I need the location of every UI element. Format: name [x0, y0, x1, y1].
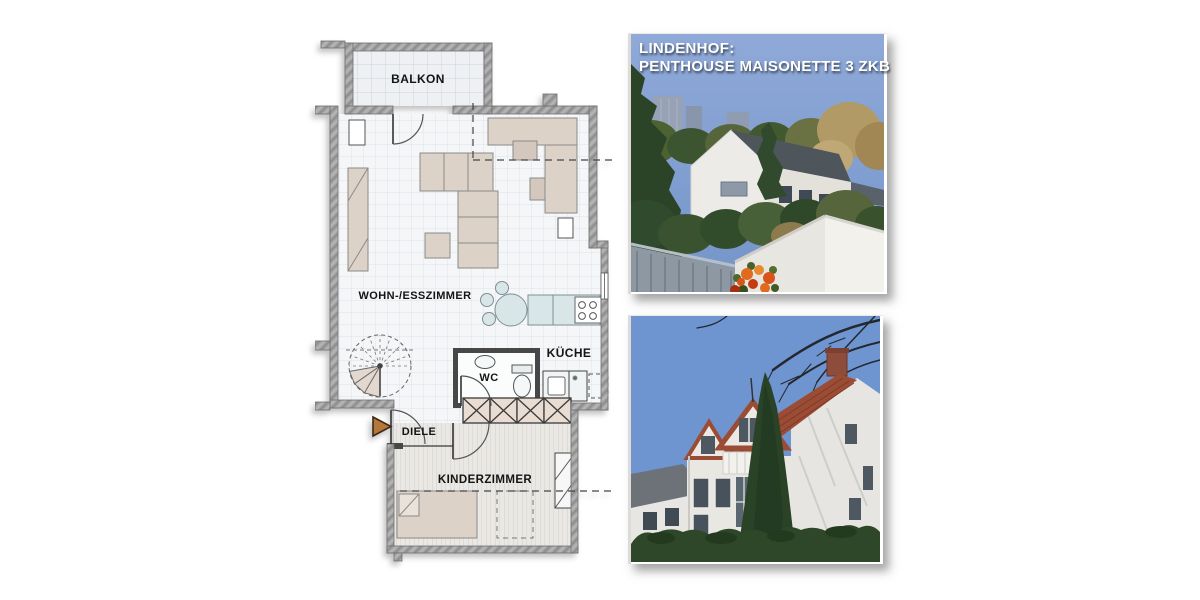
- room-label-balkon: BALKON: [391, 72, 445, 86]
- headline-line-2: PENTHOUSE MAISONETTE 3 ZKB: [639, 58, 890, 76]
- listing-headline: LINDENHOF: PENTHOUSE MAISONETTE 3 ZKB: [639, 40, 890, 76]
- stove: [575, 297, 601, 323]
- washbasin: [475, 356, 495, 369]
- dining-table: [495, 294, 527, 326]
- wall-niche: [558, 218, 573, 238]
- sofa-return: [458, 191, 498, 268]
- chair: [483, 313, 496, 326]
- headline-line-1: LINDENHOF:: [639, 40, 890, 58]
- floor-plan: BALKON WOHN-/ESSZIMMER KÜCHE WC DIELE KI…: [315, 36, 615, 574]
- room-label-kueche: KÜCHE: [547, 345, 592, 360]
- side-table: [425, 233, 450, 258]
- listing-composite: BALKON WOHN-/ESSZIMMER KÜCHE WC DIELE KI…: [0, 0, 1200, 600]
- toilet: [514, 375, 531, 397]
- floor-plan-drawing: BALKON WOHN-/ESSZIMMER KÜCHE WC DIELE KI…: [315, 36, 615, 574]
- cabinet-right: [545, 145, 577, 213]
- photo-balcony-view: LINDENHOF: PENTHOUSE MAISONETTE 3 ZKB: [628, 33, 887, 294]
- house-exterior-illustration: [631, 316, 880, 562]
- photo-house-exterior: [628, 315, 883, 564]
- room-label-wohn-esszimmer: WOHN-/ESSZIMMER: [359, 290, 472, 302]
- shaft: [349, 120, 365, 145]
- closet-row: [463, 398, 571, 423]
- wardrobe-left: [348, 168, 368, 271]
- toilet-tank: [512, 365, 532, 373]
- chimney: [827, 350, 847, 376]
- sofa: [420, 153, 493, 191]
- chair: [481, 294, 494, 307]
- room-label-diele: DIELE: [402, 426, 436, 438]
- chair: [496, 282, 509, 295]
- room-label-kinderzimmer: KINDERZIMMER: [438, 474, 533, 486]
- room-label-wc: WC: [479, 372, 498, 384]
- tv-unit: [513, 141, 537, 160]
- entrance-arrow-icon: [373, 417, 391, 436]
